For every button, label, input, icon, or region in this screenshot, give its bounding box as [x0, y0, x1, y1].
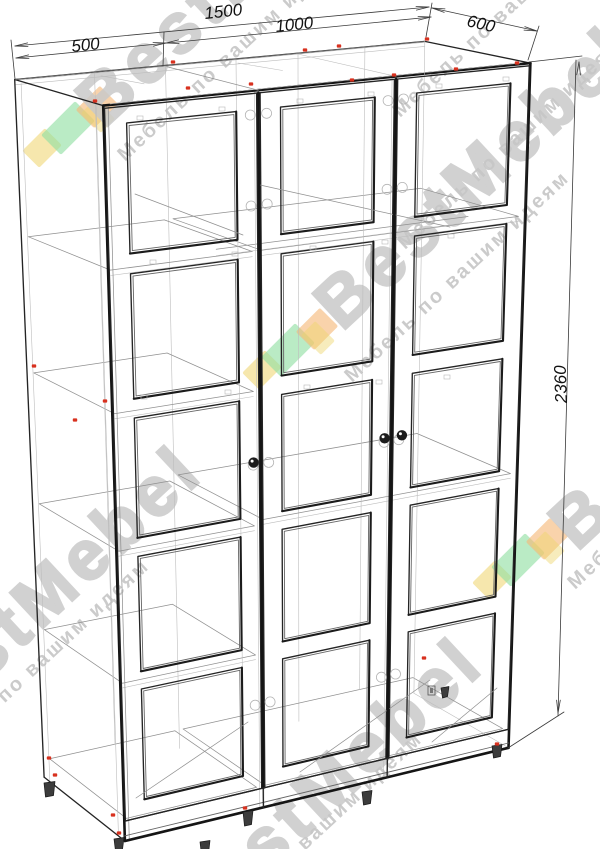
svg-text:2360: 2360 — [551, 365, 571, 405]
svg-text:1500: 1500 — [203, 0, 243, 23]
svg-text:1000: 1000 — [274, 13, 314, 36]
svg-text:500: 500 — [70, 34, 101, 56]
